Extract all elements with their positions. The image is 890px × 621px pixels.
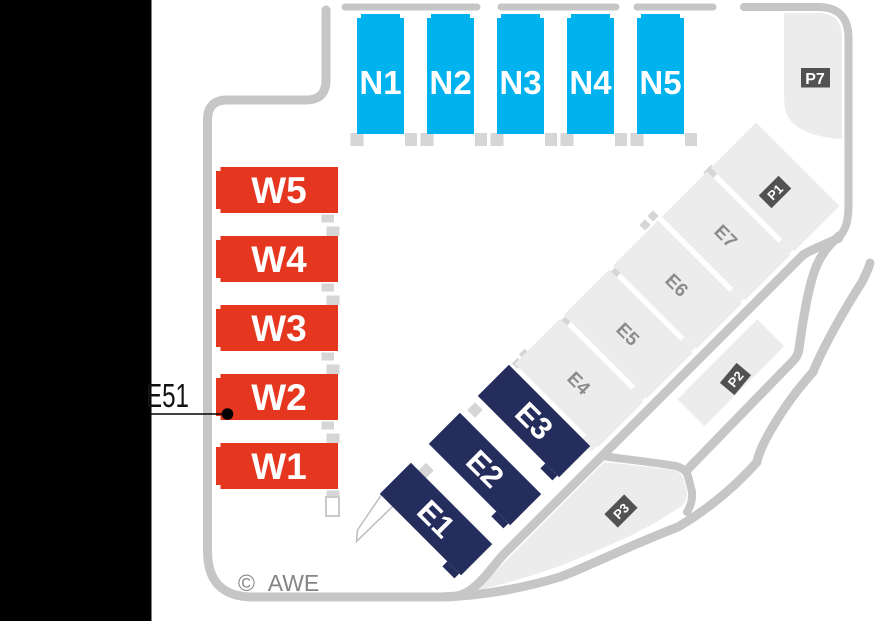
svg-text:© AWE: © AWE (238, 570, 319, 596)
svg-text:W1: W1 (251, 446, 307, 487)
svg-text:N1: N1 (359, 64, 401, 101)
svg-text:P7: P7 (805, 71, 825, 88)
svg-text:N5: N5 (639, 64, 681, 101)
svg-text:W4: W4 (251, 239, 307, 280)
svg-text:N4: N4 (569, 64, 612, 101)
svg-text:E51: E51 (146, 378, 189, 415)
svg-text:N2: N2 (429, 64, 471, 101)
svg-text:W5: W5 (251, 170, 307, 211)
svg-text:N3: N3 (499, 64, 541, 101)
svg-text:W3: W3 (251, 308, 307, 349)
svg-text:W2: W2 (251, 377, 307, 418)
